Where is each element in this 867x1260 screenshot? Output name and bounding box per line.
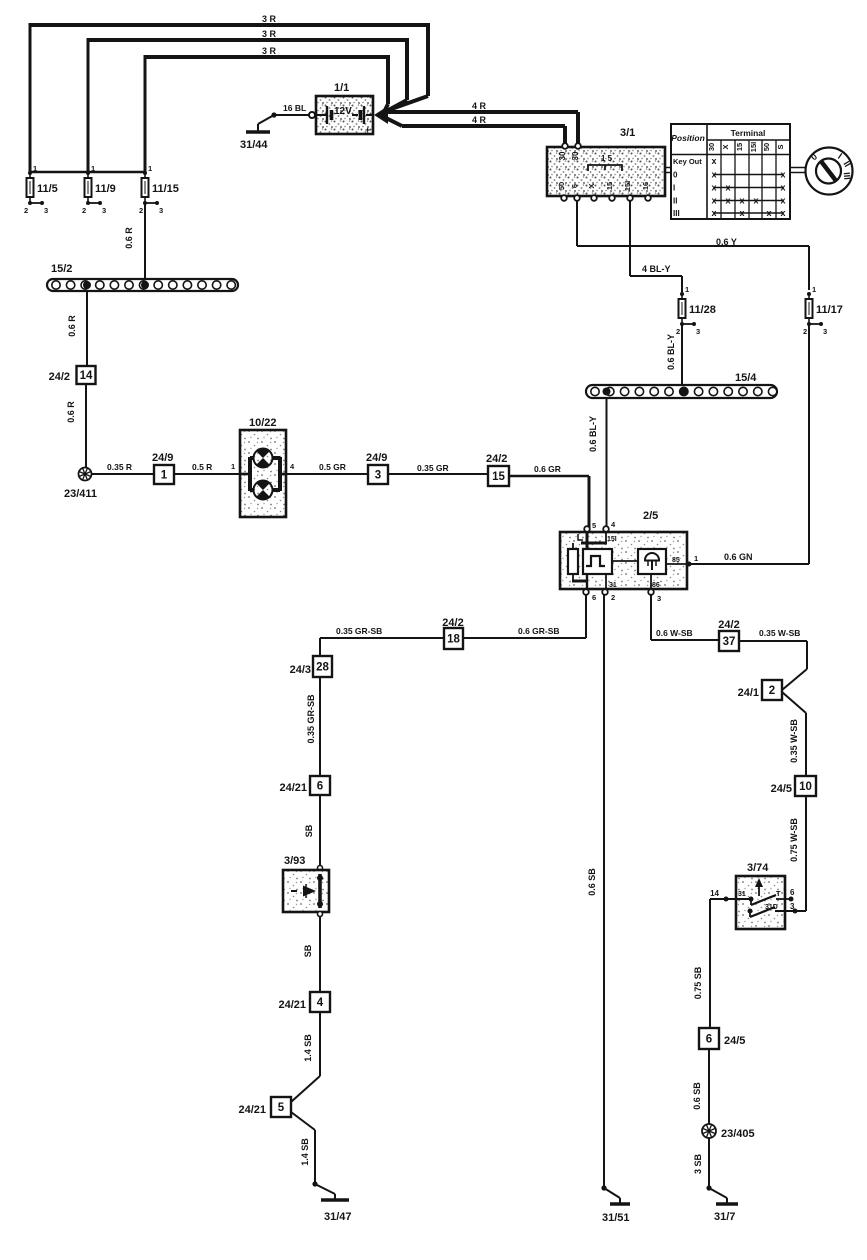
- svg-text:Terminal: Terminal: [731, 128, 766, 138]
- svg-text:15/2: 15/2: [51, 263, 72, 275]
- svg-text:0.75 W-SB: 0.75 W-SB: [789, 818, 799, 862]
- svg-text:16: 16: [641, 182, 650, 190]
- svg-text:24/3: 24/3: [290, 664, 311, 676]
- svg-text:0.75 SB: 0.75 SB: [693, 966, 703, 999]
- svg-text:3 SB: 3 SB: [693, 1153, 703, 1174]
- svg-text:24/5: 24/5: [724, 1035, 745, 1047]
- svg-text:2: 2: [82, 206, 86, 215]
- svg-text:15: 15: [492, 471, 505, 483]
- svg-text:0.35 GR: 0.35 GR: [417, 463, 449, 473]
- svg-text:30: 30: [707, 143, 716, 151]
- svg-text:III: III: [842, 172, 853, 180]
- svg-text:31: 31: [738, 891, 746, 898]
- svg-text:28: 28: [316, 662, 329, 674]
- svg-text:50: 50: [762, 143, 771, 151]
- svg-text:15I: 15I: [749, 142, 758, 152]
- svg-text:3: 3: [159, 206, 163, 215]
- svg-text:0.6 GR-SB: 0.6 GR-SB: [518, 626, 560, 636]
- svg-text:18: 18: [447, 634, 460, 646]
- svg-text:6: 6: [706, 1034, 712, 1046]
- svg-text:SB: SB: [303, 944, 313, 957]
- svg-text:23/405: 23/405: [721, 1128, 755, 1140]
- svg-text:0.6 W-SB: 0.6 W-SB: [656, 628, 693, 638]
- svg-text:2: 2: [676, 327, 680, 336]
- svg-text:x: x: [739, 208, 744, 218]
- svg-text:1: 1: [148, 164, 152, 173]
- svg-text:4: 4: [317, 997, 324, 1009]
- svg-text:10: 10: [799, 781, 812, 793]
- svg-text:0.35 GR-SB: 0.35 GR-SB: [336, 626, 382, 636]
- svg-text:0.6 Y: 0.6 Y: [716, 237, 737, 247]
- svg-text:SB: SB: [304, 824, 314, 837]
- svg-text:X: X: [587, 183, 596, 188]
- svg-text:11/15: 11/15: [152, 183, 179, 195]
- svg-text:86: 86: [652, 582, 660, 589]
- svg-text:15I: 15I: [623, 181, 632, 191]
- svg-text:15I: 15I: [607, 536, 617, 543]
- svg-text:0.6 BL-Y: 0.6 BL-Y: [666, 334, 676, 370]
- svg-text:23/411: 23/411: [64, 488, 97, 500]
- svg-text:3 R: 3 R: [262, 46, 277, 56]
- svg-text:0.6 GN: 0.6 GN: [724, 552, 753, 562]
- svg-text:50: 50: [557, 182, 566, 190]
- svg-text:0.6 R: 0.6 R: [66, 401, 76, 423]
- svg-text:1: 1: [694, 554, 698, 563]
- svg-text:S: S: [776, 144, 785, 149]
- svg-text:3: 3: [44, 206, 48, 215]
- svg-text:6: 6: [570, 184, 579, 188]
- svg-text:0.6 SB: 0.6 SB: [692, 1082, 702, 1110]
- svg-text:3/1: 3/1: [620, 127, 635, 139]
- svg-text:24/21: 24/21: [238, 1104, 266, 1116]
- svg-text:2: 2: [611, 593, 615, 602]
- svg-text:12V: 12V: [334, 106, 352, 117]
- svg-text:1: 1: [161, 470, 168, 482]
- svg-text:0.35 GR-SB: 0.35 GR-SB: [306, 694, 316, 744]
- svg-text:31/47: 31/47: [324, 1211, 352, 1223]
- svg-text:x: x: [711, 183, 716, 193]
- svg-text:0.35 W-SB: 0.35 W-SB: [789, 719, 799, 763]
- svg-text:1/1: 1/1: [334, 82, 349, 94]
- svg-text:2/5: 2/5: [643, 510, 658, 522]
- svg-text:6: 6: [317, 781, 323, 793]
- svg-text:24/9: 24/9: [152, 452, 173, 464]
- svg-text:x: x: [711, 196, 716, 206]
- svg-text:x: x: [725, 196, 730, 206]
- svg-text:3: 3: [102, 206, 106, 215]
- svg-text:30: 30: [571, 151, 580, 160]
- svg-text:3: 3: [657, 594, 661, 603]
- svg-text:15/4: 15/4: [735, 372, 757, 384]
- svg-text:3/93: 3/93: [284, 855, 305, 867]
- svg-text:x: x: [711, 208, 716, 218]
- svg-text:2: 2: [769, 685, 775, 697]
- svg-text:3 R: 3 R: [262, 29, 277, 39]
- svg-text:0.6 BL-Y: 0.6 BL-Y: [588, 416, 598, 452]
- svg-text:2: 2: [24, 206, 28, 215]
- svg-text:15: 15: [735, 143, 744, 151]
- svg-text:11/5: 11/5: [37, 183, 58, 195]
- svg-text:4 R: 4 R: [472, 115, 487, 125]
- svg-text:3: 3: [375, 470, 381, 482]
- svg-text:1: 1: [33, 164, 37, 173]
- svg-text:11/9: 11/9: [95, 183, 116, 195]
- svg-text:6: 6: [790, 888, 795, 897]
- svg-text:x: x: [780, 196, 785, 206]
- svg-text:x: x: [725, 183, 730, 193]
- svg-text:3: 3: [790, 902, 795, 911]
- svg-text:11/28: 11/28: [689, 304, 716, 316]
- svg-text:4 R: 4 R: [472, 101, 487, 111]
- svg-text:1.4 SB: 1.4 SB: [303, 1034, 313, 1062]
- svg-text:3 R: 3 R: [262, 14, 277, 24]
- svg-text:Position: Position: [671, 133, 705, 143]
- svg-text:Key Out: Key Out: [673, 157, 702, 166]
- svg-text:24/1: 24/1: [738, 687, 759, 699]
- svg-text:24/5: 24/5: [771, 783, 792, 795]
- svg-text:31/44: 31/44: [240, 139, 268, 151]
- svg-text:24/21: 24/21: [278, 999, 306, 1011]
- svg-text:10/22: 10/22: [249, 417, 277, 429]
- svg-text:x: x: [753, 196, 758, 206]
- svg-text:3/74: 3/74: [747, 862, 769, 874]
- svg-text:X: X: [721, 144, 730, 149]
- svg-text:II: II: [673, 197, 677, 206]
- svg-text:1.4 SB: 1.4 SB: [300, 1138, 310, 1166]
- svg-text:x: x: [711, 170, 716, 180]
- svg-text:0.6 R: 0.6 R: [124, 227, 134, 249]
- svg-text:16 BL: 16 BL: [283, 103, 306, 113]
- svg-text:24/21: 24/21: [279, 782, 307, 794]
- svg-text:1: 1: [91, 164, 95, 173]
- svg-text:1: 1: [231, 462, 235, 471]
- svg-text:1 5: 1 5: [601, 154, 613, 163]
- svg-text:3: 3: [696, 327, 700, 336]
- svg-text:x: x: [711, 156, 716, 166]
- svg-text:2: 2: [139, 206, 143, 215]
- svg-text:x: x: [780, 170, 785, 180]
- svg-text:x: x: [766, 208, 771, 218]
- svg-text:15: 15: [605, 182, 614, 190]
- svg-text:0.5 R: 0.5 R: [192, 462, 212, 472]
- svg-text:31: 31: [609, 582, 617, 589]
- svg-text:x: x: [780, 183, 785, 193]
- svg-text:0.35 R: 0.35 R: [107, 462, 132, 472]
- svg-text:85: 85: [672, 557, 680, 564]
- svg-text:24/2: 24/2: [49, 371, 70, 383]
- svg-text:III: III: [673, 209, 680, 218]
- svg-text:x: x: [739, 196, 744, 206]
- svg-text:0.6 SB: 0.6 SB: [587, 868, 597, 896]
- svg-text:24/2: 24/2: [486, 453, 507, 465]
- svg-text:14: 14: [710, 889, 719, 898]
- svg-text:0.35 W-SB: 0.35 W-SB: [759, 628, 800, 638]
- svg-text:14: 14: [80, 370, 93, 382]
- svg-text:x: x: [780, 208, 785, 218]
- svg-text:2: 2: [803, 327, 807, 336]
- svg-text:1: 1: [685, 285, 689, 294]
- svg-text:0.6 GR: 0.6 GR: [534, 464, 561, 474]
- svg-text:0.6 R: 0.6 R: [67, 315, 77, 337]
- svg-text:24/2: 24/2: [718, 619, 739, 631]
- svg-text:I: I: [673, 184, 675, 193]
- svg-text:0.5 GR: 0.5 GR: [319, 462, 346, 472]
- svg-text:0: 0: [673, 171, 678, 180]
- svg-text:31/51: 31/51: [602, 1212, 630, 1224]
- svg-text:30: 30: [558, 151, 567, 160]
- svg-text:6: 6: [592, 593, 596, 602]
- svg-text:+: +: [365, 125, 370, 135]
- svg-text:5: 5: [592, 521, 596, 530]
- svg-text:37: 37: [723, 636, 736, 648]
- svg-text:11/17: 11/17: [816, 304, 843, 316]
- svg-text:3: 3: [823, 327, 827, 336]
- svg-text:31/7: 31/7: [714, 1211, 735, 1223]
- svg-text:24/9: 24/9: [366, 452, 387, 464]
- svg-text:1: 1: [812, 285, 816, 294]
- svg-text:T: T: [776, 889, 781, 898]
- svg-text:5: 5: [278, 1102, 285, 1114]
- svg-text:4 BL-Y: 4 BL-Y: [642, 264, 671, 274]
